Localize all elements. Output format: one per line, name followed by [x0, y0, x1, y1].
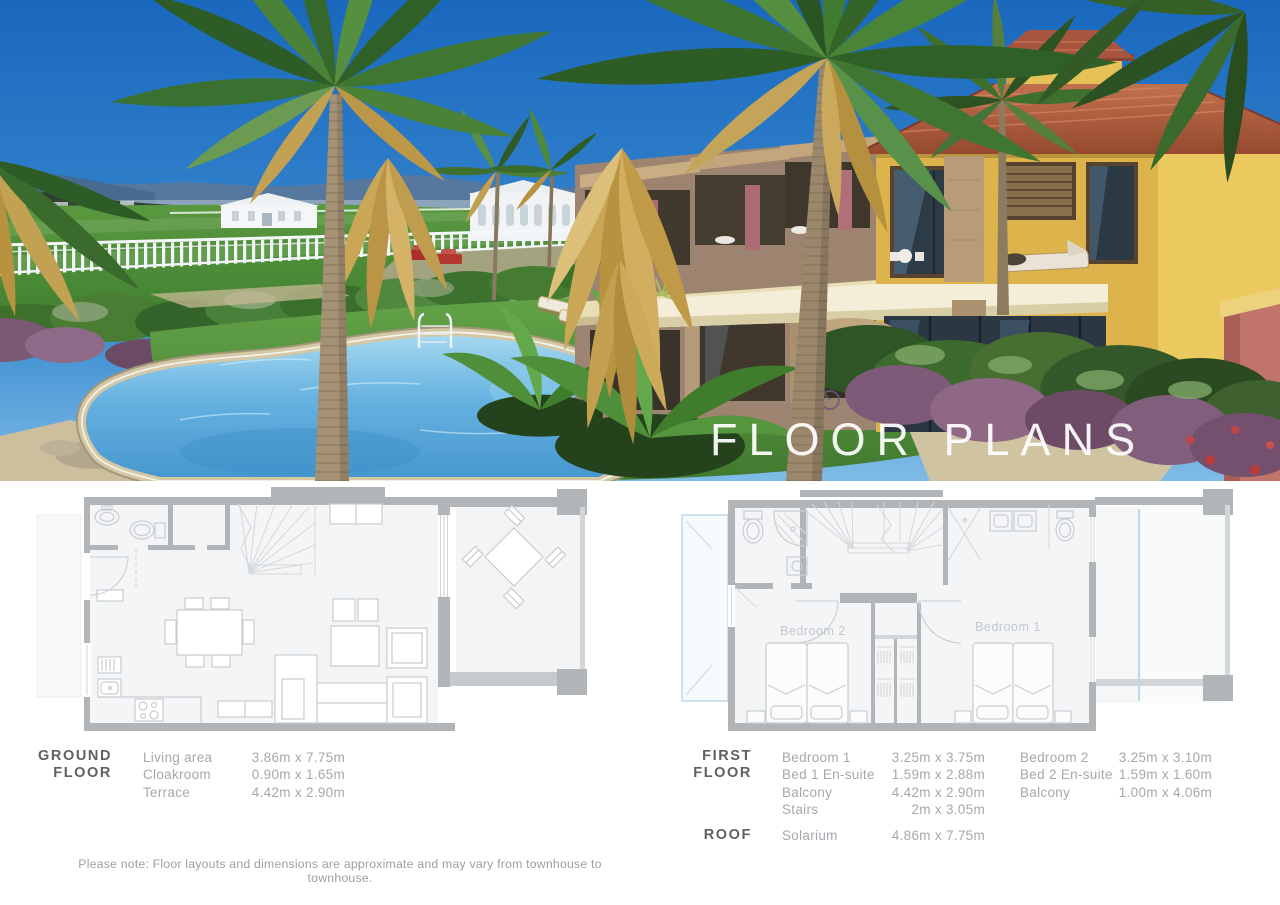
hero-photo: FLOOR PLANS: [0, 0, 1280, 481]
floor-plans-overlay-title: FLOOR PLANS: [710, 414, 1270, 466]
room-dimensions: 1.59m x 1.60m: [1085, 766, 1212, 783]
ground-floor-heading: GROUND FLOOR: [38, 748, 112, 783]
first-floor-plan-svg: Bedroom 2 Bedroom 1: [678, 487, 1237, 745]
room-dimensions: 4.42m x 2.90m: [860, 784, 985, 801]
ground-floor-plan: [35, 487, 593, 745]
bedroom-1-label: Bedroom 1: [975, 620, 1041, 634]
first-floor-plan: Bedroom 2 Bedroom 1: [678, 487, 1237, 745]
room-dimensions: 4.42m x 2.90m: [220, 784, 345, 801]
first-floor-values-col2: 3.25m x 3.10m 1.59m x 1.60m 1.00m x 4.06…: [1085, 749, 1212, 801]
room-label: Terrace: [143, 784, 212, 801]
ground-floor-plan-svg: [35, 487, 593, 745]
brochure-page: FLOOR PLANS: [0, 0, 1280, 905]
roof-labels: Solarium: [782, 827, 838, 844]
ground-floor-values: 3.86m x 7.75m 0.90m x 1.65m 4.42m x 2.90…: [220, 749, 345, 801]
first-floor-heading: FIRST FLOOR: [678, 748, 752, 783]
room-dimensions: 2m x 3.05m: [860, 801, 985, 818]
first-floor-values-col1: 3.25m x 3.75m 1.59m x 2.88m 4.42m x 2.90…: [860, 749, 985, 819]
room-label: Cloakroom: [143, 766, 212, 783]
roof-heading: ROOF: [678, 827, 752, 844]
room-label: Living area: [143, 749, 212, 766]
hero-render: [0, 0, 1280, 481]
room-dimensions: 4.86m x 7.75m: [860, 827, 985, 844]
room-dimensions: 3.25m x 3.75m: [860, 749, 985, 766]
room-dimensions: 0.90m x 1.65m: [220, 766, 345, 783]
room-dimensions: 1.59m x 2.88m: [860, 766, 985, 783]
ground-floor-labels: Living area Cloakroom Terrace: [143, 749, 212, 801]
disclaimer-note: Please note: Floor layouts and dimension…: [70, 857, 610, 885]
bedroom-2-label: Bedroom 2: [780, 624, 846, 638]
roof-values: 4.86m x 7.75m: [860, 827, 985, 844]
room-dimensions: 3.25m x 3.10m: [1085, 749, 1212, 766]
room-dimensions: 1.00m x 4.06m: [1085, 784, 1212, 801]
room-dimensions: 3.86m x 7.75m: [220, 749, 345, 766]
room-label: Solarium: [782, 827, 838, 844]
